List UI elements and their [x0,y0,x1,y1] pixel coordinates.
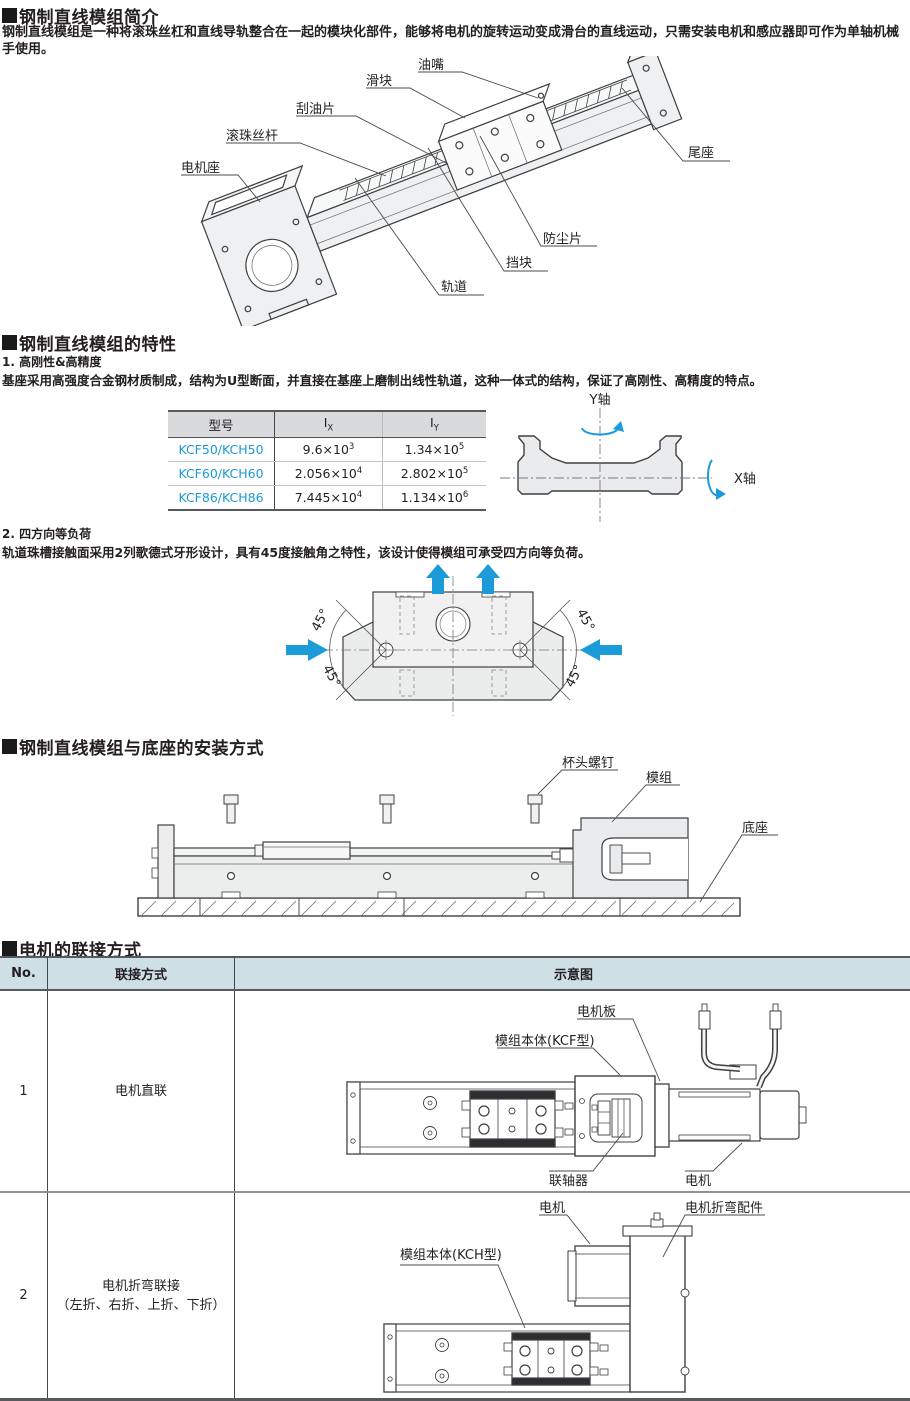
angle-label: 45° [563,663,587,690]
feature2-title: 2. 四方向等负荷 [2,525,91,542]
label-cap-screw: 杯头螺钉 [562,756,614,771]
label-motor: 电机 [539,1201,565,1216]
motor-table-header-row: No. 联接方式 示意图 [0,957,910,990]
iy-value: 1.134×106 [383,486,487,511]
col-header-ix: IX [275,411,383,438]
x-rotation-arrow-icon [708,460,722,495]
col-header-diagram: 示意图 [235,957,910,990]
table-row: 1 电机直联 [0,990,910,1192]
label-oil-nozzle: 油嘴 [418,58,444,73]
bend-connection-drawing [384,1213,692,1392]
row1-no: 1 [0,990,48,1192]
label-x-axis: X轴 [734,472,756,487]
label-y-axis: Y轴 [589,393,611,408]
feature1-body: 基座采用高强度合金钢材质制成，结构为U型断面，并直接在基座上磨制出线性轨道，这种… [2,370,908,389]
features-title-text: 钢制直线模组的特性 [19,330,177,355]
overview-diagram: 油嘴 滑块 刮油片 滚珠丝杆 电机座 尾座 防尘片 挡块 轨道 [0,56,910,326]
motor-connection-table: No. 联接方式 示意图 1 电机直联 [0,956,910,1401]
table-row: KCF86/KCH86 7.445×104 1.134×106 [168,486,486,511]
label-rail: 轨道 [441,280,467,295]
label-bend-bracket: 电机折弯配件 [685,1200,763,1216]
inertia-table-header-row: 型号 IX IY [168,411,486,438]
row2-no: 2 [0,1192,48,1400]
row1-method: 电机直联 [48,990,235,1192]
angle-label: 45° [573,607,597,634]
label-motor: 电机 [685,1174,711,1189]
angle-label: 45° [309,607,333,634]
ix-value: 9.6×103 [275,438,383,462]
row2-diagram-cell: 电机 电机折弯配件 模组本体(KCH型) [235,1192,910,1400]
section-marker-icon [2,8,17,23]
direct-connection-drawing [347,1065,806,1156]
label-module: 模组 [646,771,672,786]
cap-screws [224,795,542,823]
inertia-table: 型号 IX IY KCF50/KCH50 9.6×103 1.34×105 KC… [168,410,486,511]
model-link[interactable]: KCF60/KCH60 [168,462,275,486]
label-tail-seat: 尾座 [688,146,714,161]
section-marker-icon [2,941,17,956]
intro-paragraph: 钢制直线模组是一种将滚珠丝杠和直线导轨整合在一起的模块化部件，能够将电机的旋转运… [2,24,908,58]
direct-connection-diagram: 电机板 模组本体(KCF型) 联轴器 电机 [235,991,910,1191]
feature2-body: 轨道珠槽接触面采用2列歌德式牙形设计，具有45度接触角之特性，该设计使得模组可承… [2,542,908,561]
row2-method-line1: 电机折弯联接 [48,1277,234,1296]
bend-connection-diagram: 电机 电机折弯配件 模组本体(KCH型) [235,1193,910,1398]
section-marker-icon [2,335,17,350]
axis-cross-section-diagram: Y轴 X轴 [490,392,770,528]
table-row: 2 电机折弯联接 （左折、右折、上折、下折） [0,1192,910,1400]
table-row: KCF60/KCH60 2.056×104 2.802×105 [168,462,486,486]
row2-method: 电机折弯联接 （左折、右折、上折、下折） [48,1192,235,1400]
label-stopper: 挡块 [506,256,532,271]
feature1-title: 1. 高刚性&高精度 [2,353,102,370]
label-base: 底座 [742,820,768,836]
label-motor-mount: 电机座 [181,161,220,176]
col-header-no: No. [0,957,48,990]
row2-method-line2: （左折、右折、上折、下折） [48,1296,234,1315]
angle-label: 45° [319,663,343,690]
mounting-diagram: 杯头螺钉 模组 底座 [0,752,910,924]
col-header-method: 联接方式 [48,957,235,990]
col-header-iy: IY [383,411,487,438]
ix-value: 7.445×104 [275,486,383,511]
model-link[interactable]: KCF86/KCH86 [168,486,275,511]
equal-load-diagram: 45° 45° 45° 45° [268,562,640,730]
model-link[interactable]: KCF50/KCH50 [168,438,275,462]
label-module-body-kcf: 模组本体(KCF型) [495,1034,595,1049]
label-motor-plate: 电机板 [577,1005,616,1020]
label-module-body-kch: 模组本体(KCH型) [400,1248,502,1263]
iy-value: 2.802×105 [383,462,487,486]
ix-value: 2.056×104 [275,462,383,486]
label-ball-screw: 滚珠丝杆 [226,128,278,144]
catalog-page: { "intro": { "title": "钢制直线模组简介", "body"… [0,0,910,1398]
label-slider: 滑块 [366,74,392,89]
col-header-model: 型号 [168,411,275,438]
iy-value: 1.34×105 [383,438,487,462]
row1-diagram-cell: 电机板 模组本体(KCF型) 联轴器 电机 [235,990,910,1192]
features-section-title: 钢制直线模组的特性 [2,330,177,355]
table-row: KCF50/KCH50 9.6×103 1.34×105 [168,438,486,462]
label-coupling: 联轴器 [549,1174,588,1189]
label-dust-plate: 防尘片 [543,231,582,247]
label-oil-wiper: 刮油片 [296,102,335,117]
module-side-view [152,818,688,898]
